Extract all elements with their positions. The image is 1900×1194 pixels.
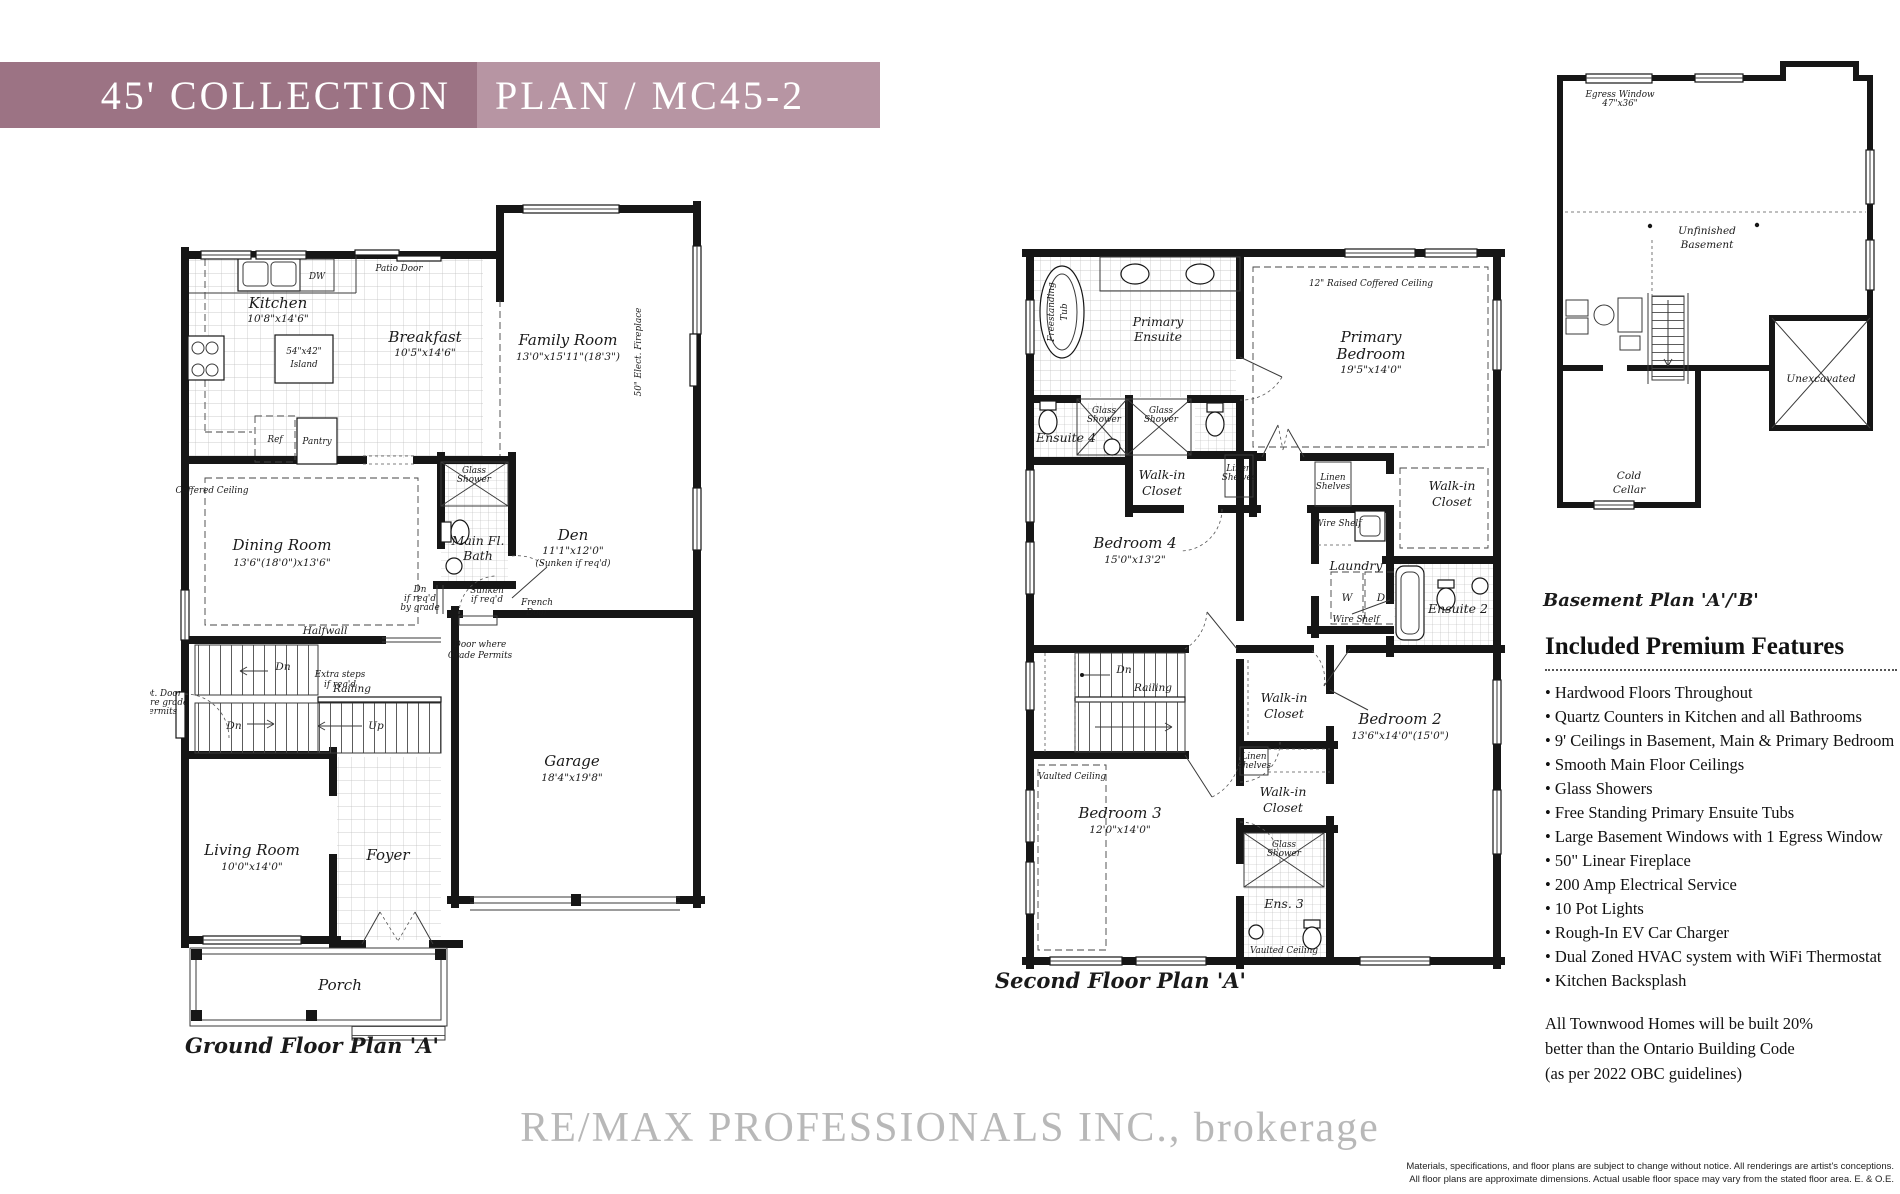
feature-item: Kitchen Backsplash (1545, 969, 1897, 993)
feature-item: 10 Pot Lights (1545, 897, 1897, 921)
bedroom4-label: Bedroom 4 (1092, 534, 1176, 552)
unexcavated-label: Unexcavated (1786, 373, 1856, 385)
dw-label: DW (308, 272, 326, 282)
dn2-label: Dn (225, 720, 241, 732)
fireplace-label: 50" Elect. Fireplace (634, 308, 644, 397)
primary-bedroom-label-1: Primary (1340, 328, 1402, 346)
windows (1586, 74, 1874, 509)
tub-label-1: Freestanding (1047, 282, 1057, 343)
pantry-label: Pantry (301, 437, 332, 447)
cold-cellar-label-2: Cellar (1613, 484, 1646, 496)
plan-code: PLAN / MC45-2 (495, 72, 805, 119)
extra-steps-1: Extra steps (314, 670, 366, 680)
primary-ensuite-label-1: Primary (1132, 314, 1185, 329)
collection-title: 45' COLLECTION (101, 72, 451, 119)
tub-label-2: Tub (1060, 303, 1070, 321)
linen1-label-2: Shelves (1222, 473, 1257, 483)
raised-ceiling-label: 12" Raised Coffered Ceiling (1309, 279, 1433, 289)
walls (1560, 64, 1870, 505)
primary-bedroom-dims: 19'5"x14'0" (1340, 364, 1401, 376)
unfinished-label-1: Unfinished (1678, 225, 1736, 237)
coffered-ceiling-label: Coffered Ceiling (176, 486, 249, 496)
ensuite2-label: Ensuite 2 (1427, 601, 1488, 616)
dn-grade-3: by grade (400, 603, 439, 613)
linen3-label-2: Shelves (1316, 482, 1351, 492)
halfwall-label: Halfwall (302, 625, 348, 637)
feature-item: Quartz Counters in Kitchen and all Bathr… (1545, 705, 1897, 729)
sunken-2: if req'd (471, 595, 503, 605)
banner-plan-code: PLAN / MC45-2 (477, 62, 880, 128)
railing-label: Railing (1133, 682, 1172, 694)
ensuite4-label: Ensuite 4 (1035, 430, 1096, 445)
wic3-label-2: Closet (1263, 800, 1304, 815)
laundry-label: Laundry (1329, 558, 1384, 573)
garage-label: Garage (544, 752, 600, 770)
vaulted-ceiling-2: Vaulted Ceiling (1250, 946, 1318, 956)
foyer-label: Foyer (365, 846, 410, 864)
dryer-label: D (1376, 592, 1386, 604)
title-banner: 45' COLLECTION PLAN / MC45-2 (0, 62, 880, 128)
glass-shower-3b: Shower (1267, 849, 1302, 859)
wic2-label-1: Walk-in (1261, 690, 1308, 705)
feature-item: Large Basement Windows with 1 Egress Win… (1545, 825, 1897, 849)
feature-item: Glass Showers (1545, 777, 1897, 801)
wic3-label-1: Walk-in (1260, 784, 1307, 799)
vaulted-ceiling-1: Vaulted Ceiling (1038, 772, 1106, 782)
banner-collection: 45' COLLECTION (0, 62, 477, 128)
railing-label: Railing (332, 683, 371, 695)
den-dims: 11'1"x12'0" (542, 545, 603, 557)
feature-item: Dual Zoned HVAC system with WiFi Thermos… (1545, 945, 1897, 969)
basement-stairs (1648, 293, 1688, 384)
obc-note-line: better than the Ontario Building Code (1545, 1036, 1897, 1061)
obc-note: All Townwood Homes will be built 20% bet… (1545, 1011, 1897, 1086)
basement-labels: Egress Window 47"x36" Unfinished Basemen… (1542, 90, 1856, 611)
wire-shelf-bottom: Wire Shelf (1333, 615, 1382, 625)
feature-item: Hardwood Floors Throughout (1545, 681, 1897, 705)
dn-label: Dn (1115, 664, 1131, 676)
glass-shower-1b: Shower (1087, 415, 1122, 425)
wic1-label-2: Closet (1142, 483, 1183, 498)
garage-dims: 18'4"x19'8" (541, 772, 602, 784)
tile-floors (189, 257, 508, 940)
living-room-dims: 10'0"x14'0" (221, 861, 282, 873)
unfinished-label-2: Basement (1680, 239, 1735, 251)
up-label: Up (368, 720, 384, 732)
den-label: Den (557, 526, 589, 544)
breakfast-label: Breakfast (387, 328, 462, 346)
primary-bedroom-label-2: Bedroom (1336, 345, 1406, 363)
bedroom2-label: Bedroom 2 (1357, 710, 1441, 728)
breakfast-dims: 10'5"x14'6" (394, 347, 455, 359)
main-bath-label-2: Bath (462, 548, 493, 563)
primary-wic-label-2: Closet (1432, 494, 1473, 509)
disclaimer-line-1: Materials, specifications, and floor pla… (1254, 1160, 1894, 1173)
ground-floor-plan: Kitchen 10'8"x14'6" 54"x42" Island DW Re… (150, 160, 710, 1060)
porch-structure (190, 948, 447, 1040)
second-floor-plan: Freestanding Tub Primary Ensuite Glass S… (990, 195, 1510, 1000)
features-list: Hardwood Floors Throughout Quartz Counte… (1545, 681, 1897, 993)
dining-room-label: Dining Room (232, 536, 332, 554)
den-note: (Sunken if req'd) (535, 558, 611, 569)
main-bath-label-1: Main Fl. (451, 533, 505, 548)
door-grade-2: Grade Permits (448, 651, 513, 661)
living-room-label: Living Room (203, 841, 300, 859)
feature-item: Rough-In EV Car Charger (1545, 921, 1897, 945)
egress-window-size: 47"x36" (1601, 99, 1637, 109)
french-door-1: French (520, 598, 553, 608)
dining-room-dims: 13'6"(18'0")x13'6" (233, 557, 330, 569)
glass-shower-2b: Shower (1144, 415, 1179, 425)
stairs (1045, 653, 1185, 752)
primary-ensuite-label-2: Ensuite (1133, 329, 1182, 344)
obc-note-line: All Townwood Homes will be built 20% (1545, 1011, 1897, 1036)
family-room-dims: 13'0"x15'11"(18'3") (516, 351, 620, 363)
washer-label: W (1342, 592, 1354, 604)
glass-shower-label-2: Shower (457, 475, 492, 485)
opt-door-3: permits (150, 707, 178, 717)
dn-label: Dn (274, 661, 290, 673)
feature-item: 50" Linear Fireplace (1545, 849, 1897, 873)
disclaimer: Materials, specifications, and floor pla… (1254, 1160, 1894, 1187)
feature-item: Smooth Main Floor Ceilings (1545, 753, 1897, 777)
wic1-label-1: Walk-in (1139, 467, 1186, 482)
ref-label: Ref (266, 435, 284, 445)
primary-wic-label-1: Walk-in (1429, 478, 1476, 493)
feature-item: 200 Amp Electrical Service (1545, 873, 1897, 897)
patio-door-label: Patio Door (374, 264, 423, 274)
bedroom2-dims: 13'6"x14'0"(15'0") (1351, 730, 1448, 742)
kitchen-dims: 10'8"x14'6" (247, 313, 308, 325)
cold-cellar-label-1: Cold (1617, 470, 1642, 482)
floorplan-sheet: { "colors":{"banner_dark":"#9C7384","ban… (0, 0, 1900, 1194)
disclaimer-line-2: All floor plans are approximate dimensio… (1254, 1173, 1894, 1186)
linen2-label-2: Shelves (1237, 761, 1272, 771)
basement-caption: Basement Plan 'A'/'B' (1542, 590, 1759, 611)
basement-plan: Egress Window 47"x36" Unfinished Basemen… (1540, 40, 1890, 620)
brokerage-watermark: RE/MAX PROFESSIONALS INC., brokerage (430, 1104, 1470, 1152)
door-grade-1: Door where (453, 640, 506, 650)
wic2-label-2: Closet (1264, 706, 1305, 721)
wire-shelf-top: Wire Shelf (1315, 519, 1364, 529)
feature-item: Free Standing Primary Ensuite Tubs (1545, 801, 1897, 825)
porch-label: Porch (317, 976, 362, 994)
features-title: Included Premium Features (1545, 633, 1897, 671)
bedroom4-dims: 15'0"x13'2" (1104, 554, 1165, 566)
bedroom3-dims: 12'0"x14'0" (1089, 824, 1150, 836)
kitchen-label: Kitchen (248, 294, 308, 312)
ensuite3-label: Ens. 3 (1263, 896, 1304, 911)
premium-features-panel: Included Premium Features Hardwood Floor… (1545, 633, 1897, 1086)
family-room-label: Family Room (518, 331, 618, 349)
bedroom3-label: Bedroom 3 (1077, 804, 1161, 822)
island-size: 54"x42" (286, 347, 321, 357)
feature-item: 9' Ceilings in Basement, Main & Primary … (1545, 729, 1897, 753)
second-floor-caption: Second Floor Plan 'A' (995, 968, 1246, 993)
obc-note-line: (as per 2022 OBC guidelines) (1545, 1061, 1897, 1086)
french-door-2: Door (525, 608, 549, 618)
ground-floor-caption: Ground Floor Plan 'A' (185, 1033, 439, 1058)
island-label: Island (289, 360, 318, 370)
